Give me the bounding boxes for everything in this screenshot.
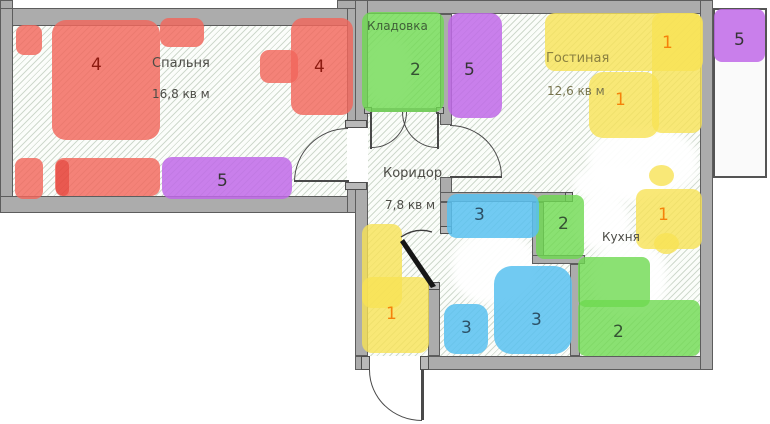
marker-2-kitchen: 2 — [613, 322, 624, 342]
jamb-entrance-right — [420, 356, 429, 370]
jamb-bedroom-door-bottom — [345, 182, 367, 190]
jamb-bedroom-door-top — [345, 120, 367, 128]
marker-5-bedroom: 5 — [217, 171, 228, 191]
marker-3-bath-top: 3 — [474, 205, 485, 225]
living-area: 12,6 кв м — [547, 84, 605, 98]
living-label: Гостиная — [546, 51, 609, 66]
marker-1-living-mid: 1 — [615, 90, 626, 110]
zone-4-bed-bottom-small-blob — [15, 158, 43, 199]
bedroom-label: Спальня — [152, 56, 210, 71]
zone-4-bed-dark-streak — [56, 160, 69, 196]
corridor-label: Коридор — [383, 166, 442, 181]
zone-5-living-blob — [448, 13, 502, 118]
marker-5-balcony: 5 — [734, 30, 745, 50]
living-door-leaf — [450, 176, 502, 178]
marker-2-closet: 2 — [410, 60, 421, 80]
bedroom-door-leaf — [294, 180, 349, 182]
zone-4-bed-top-blob — [160, 18, 204, 47]
zone-4-bed-bottom-wide-blob — [55, 158, 160, 196]
closet-label: Кладовка — [367, 19, 428, 33]
marker-3-bath-left: 3 — [461, 318, 472, 338]
floor-plan: Спальня 16,8 кв м Кладовка Гостиная 12,6… — [0, 0, 770, 424]
kitchen-label: Кухня — [602, 230, 640, 244]
entrance-door-arc — [369, 370, 422, 421]
marker-2-niche: 2 — [558, 214, 569, 234]
zone-3-bath-top-blob — [447, 194, 539, 238]
marker-4-bed-left: 4 — [91, 55, 102, 75]
closet-door-right-leaf — [437, 112, 439, 149]
wall-main-bottom-right — [421, 356, 713, 370]
zone-2-kitchen-band-blob — [578, 300, 700, 356]
zone-1-kitchen-dot — [654, 233, 679, 254]
marker-1-kitchen: 1 — [658, 205, 669, 225]
zone-4-bed-large-blob — [52, 20, 160, 140]
marker-3-bath-right: 3 — [531, 310, 542, 330]
bathroom-door-sketch — [392, 226, 448, 296]
bedroom-area: 16,8 кв м — [152, 87, 210, 101]
marker-4-bed-right: 4 — [314, 57, 325, 77]
zone-1-living-dot — [649, 165, 674, 186]
jamb-entrance-left — [361, 356, 370, 370]
zone-1-living-right-blob — [652, 13, 702, 133]
marker-5-living: 5 — [464, 60, 475, 80]
wall-bath-left-lower — [428, 288, 440, 356]
corridor-area: 7,8 кв м — [385, 198, 435, 212]
wall-bedroom-left — [0, 8, 13, 213]
marker-1-living-top: 1 — [662, 33, 673, 53]
zone-4-bed-corner-blob — [16, 25, 42, 55]
marker-1-corridor: 1 — [386, 304, 397, 324]
